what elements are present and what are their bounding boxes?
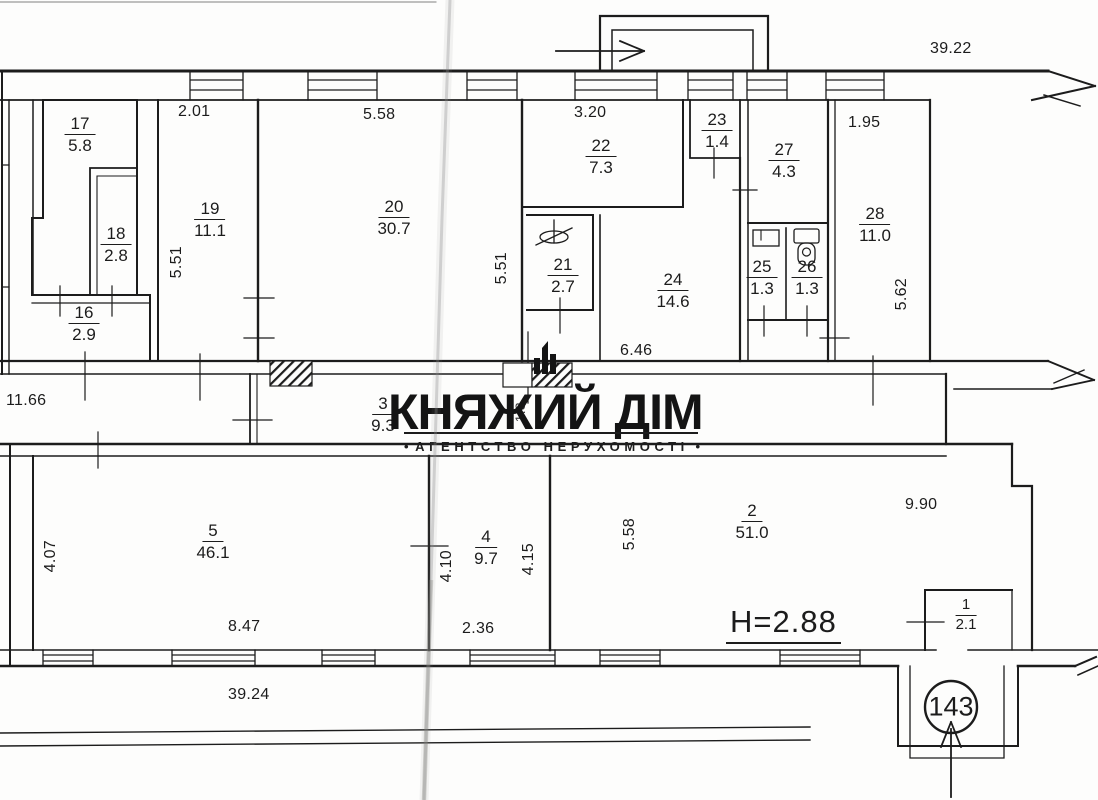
dim-room2-height: 5.58 (621, 518, 639, 550)
dim-corridor-length: 11.66 (6, 392, 46, 410)
wall-break-arrow-icon (1032, 71, 1095, 106)
room-area: 11.0 (859, 225, 891, 245)
dim-bottom-length: 39.24 (228, 686, 270, 704)
room-number: 22 (586, 136, 617, 157)
room-22-label: 227.3 (586, 136, 617, 177)
room-area: 5.8 (65, 135, 96, 155)
room-28-label: 2811.0 (859, 204, 891, 245)
room-2-label: 251.0 (735, 501, 768, 542)
room-area: 9.7 (474, 548, 498, 568)
room-area: 4.3 (769, 161, 800, 181)
room-area: 2.8 (101, 245, 132, 265)
wall-break-arrow-icon (1075, 657, 1098, 675)
room-number: 18 (101, 224, 132, 245)
room-27-label: 274.3 (769, 140, 800, 181)
room-area: 51.0 (735, 522, 768, 542)
dim-room4-height-right: 4.15 (520, 543, 538, 575)
wall-break-arrow-icon (1048, 361, 1094, 389)
watermark-divider (404, 432, 698, 434)
interior-walls-lower (0, 432, 1032, 666)
room-area: 2.1 (956, 616, 977, 634)
dim-room24-width: 6.46 (620, 342, 652, 360)
room-17-label: 175.8 (65, 114, 96, 155)
sink-icon (536, 220, 572, 245)
room-number: 26 (792, 257, 823, 278)
dim-top-length: 39.22 (930, 40, 972, 58)
room-number: 16 (69, 303, 100, 324)
dim-room20-height: 5.51 (493, 252, 511, 284)
dim-room4-height-left: 4.10 (438, 550, 456, 582)
dim-room4-width: 2.36 (462, 620, 494, 638)
entrance-arrow-icon (941, 722, 961, 797)
watermark-subtitle-text: АГЕНТСТВО НЕРУХОМОСТІ (415, 439, 689, 454)
room-number: 28 (860, 204, 891, 225)
dim-room20-width: 5.58 (363, 106, 395, 124)
windows-bottom-wall (43, 650, 860, 666)
room-20-label: 2030.7 (377, 197, 410, 238)
dim-room5-height: 4.07 (42, 540, 60, 572)
room-area: 2.9 (69, 324, 100, 344)
entrance-number: 143 (928, 692, 973, 723)
room-number: 24 (658, 270, 689, 291)
room-number: 5 (202, 521, 223, 542)
room-number: 19 (195, 199, 226, 220)
watermark-subtitle: • АГЕНТСТВО НЕРУХОМОСТІ • (404, 439, 700, 454)
room-26-label: 261.3 (792, 257, 823, 298)
room-19-label: 1911.1 (194, 199, 226, 240)
room-number: 1 (956, 597, 976, 616)
room-area: 11.1 (194, 220, 226, 240)
dim-room5-width: 8.47 (228, 618, 260, 636)
floor-plan: 39.22 2.01 5.58 3.20 1.95 5.51 5.51 5.62… (0, 0, 1098, 800)
room-23-label: 231.4 (702, 110, 733, 151)
dim-right-section: 9.90 (905, 496, 937, 514)
logo-building-icon (534, 341, 556, 374)
exterior-walls (0, 71, 1095, 374)
dim-room19-width: 2.01 (178, 103, 210, 121)
exterior-wall-bottom (0, 650, 1098, 675)
room-number: 4 (475, 527, 496, 548)
room-25-label: 251.3 (747, 257, 778, 298)
dim-room28-height: 5.62 (893, 278, 911, 310)
room-5-label: 546.1 (196, 521, 229, 562)
room-number: 27 (769, 140, 800, 161)
room-area: 1.4 (702, 131, 733, 151)
entrance-porch (898, 666, 1018, 797)
room-number: 23 (702, 110, 733, 131)
dim-room28-width: 1.95 (848, 114, 880, 132)
dim-room19-height: 5.51 (168, 246, 186, 278)
windows-top-wall (190, 71, 884, 100)
bay-structure (600, 16, 768, 70)
room-21-label: 212.7 (548, 255, 579, 296)
bullet-icon: • (695, 439, 700, 454)
room-area: 46.1 (196, 542, 229, 562)
room-area: 2.7 (548, 276, 579, 296)
room-number: 20 (379, 197, 410, 218)
room-area: 14.6 (656, 291, 689, 311)
room-24-label: 2414.6 (656, 270, 689, 311)
room-16-label: 162.9 (69, 303, 100, 344)
room-1-label: 12.1 (956, 597, 977, 634)
room-number: 25 (747, 257, 778, 278)
hatched-wall (270, 361, 312, 386)
room-area: 1.3 (747, 278, 778, 298)
room-area: 30.7 (377, 218, 410, 238)
room-area: 1.3 (792, 278, 823, 298)
room-number: 21 (548, 255, 579, 276)
bullet-icon: • (404, 439, 409, 454)
sidewalk-strip (0, 727, 810, 746)
room-area: 7.3 (586, 157, 617, 177)
room-number: 2 (741, 501, 762, 522)
entry-arrow-icon (556, 41, 644, 61)
cistern-icon (753, 230, 779, 246)
room-18-label: 182.8 (101, 224, 132, 265)
dim-room22-width: 3.20 (574, 104, 606, 122)
room-number: 17 (65, 114, 96, 135)
room-4-label: 49.7 (474, 527, 498, 568)
ceiling-height-note: H=2.88 (726, 604, 841, 644)
